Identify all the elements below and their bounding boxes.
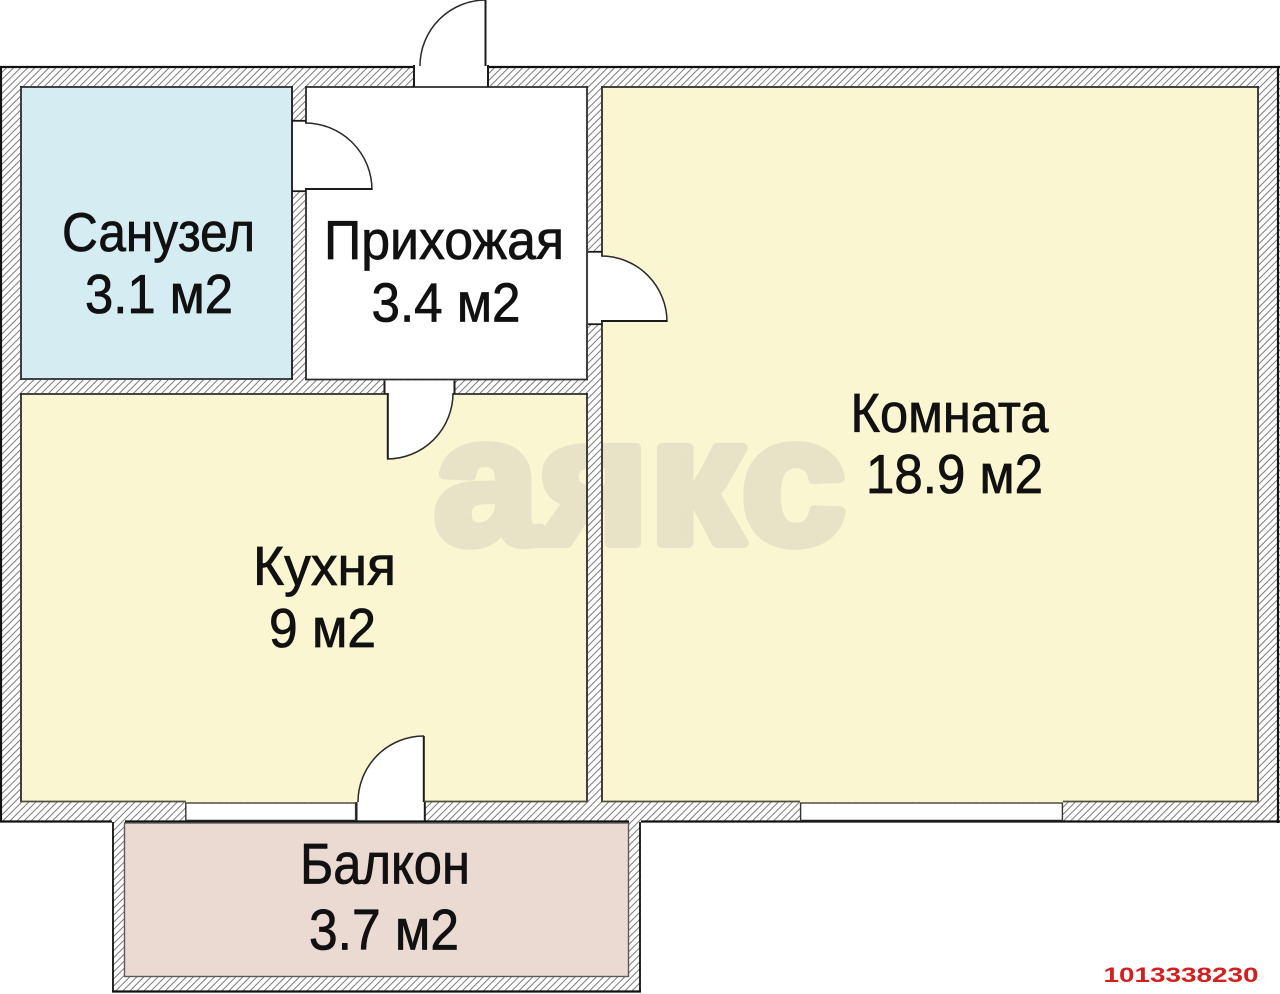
svg-text:3.4 м2: 3.4 м2 [372, 272, 521, 334]
svg-text:1013338230: 1013338230 [1104, 963, 1259, 987]
svg-text:Комната: Комната [851, 382, 1049, 444]
svg-text:Балкон: Балкон [300, 833, 470, 897]
svg-text:Прихожая: Прихожая [324, 209, 564, 271]
svg-text:аякс: аякс [434, 381, 846, 582]
svg-text:3.7 м2: 3.7 м2 [309, 899, 459, 963]
svg-text:Кухня: Кухня [253, 535, 396, 597]
svg-text:18.9 м2: 18.9 м2 [866, 443, 1043, 505]
svg-text:3.1 м2: 3.1 м2 [85, 263, 233, 325]
svg-text:Санузел: Санузел [62, 201, 255, 263]
svg-text:9 м2: 9 м2 [269, 597, 376, 659]
